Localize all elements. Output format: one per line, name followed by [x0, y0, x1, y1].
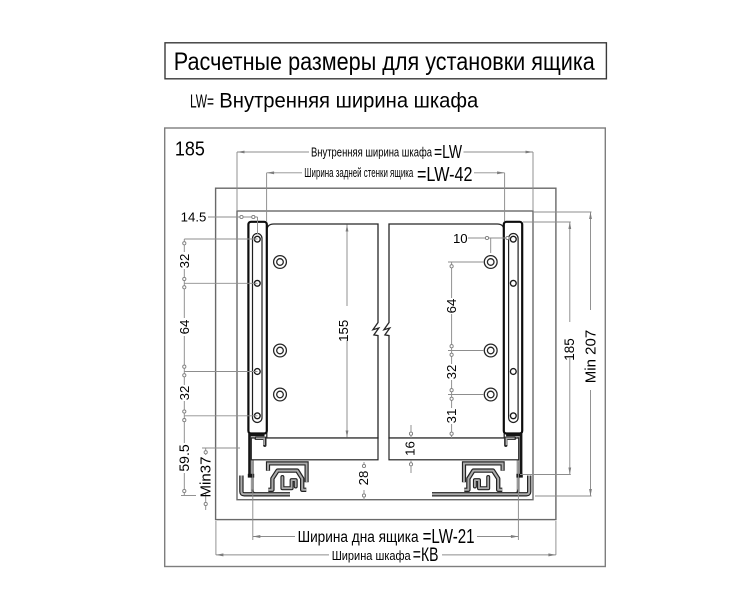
svg-text:31: 31 — [444, 409, 459, 424]
svg-text:Ширина задней стенки ящика: Ширина задней стенки ящика — [304, 165, 413, 180]
svg-text:28: 28 — [356, 471, 371, 486]
svg-text:Ширина шкафа: Ширина шкафа — [332, 548, 412, 563]
svg-text:32: 32 — [444, 365, 459, 380]
svg-text:=КВ: =КВ — [413, 545, 439, 566]
svg-text:Внутренняя ширина шкафа: Внутренняя ширина шкафа — [219, 90, 478, 113]
svg-text:Ширина дна ящика: Ширина дна ящика — [298, 529, 419, 546]
svg-text:=LW: =LW — [434, 141, 462, 162]
svg-text:155: 155 — [336, 320, 351, 342]
svg-text:185: 185 — [175, 139, 205, 161]
svg-text:64: 64 — [444, 299, 459, 314]
svg-text:14.5: 14.5 — [181, 210, 207, 225]
svg-text:=LW-42: =LW-42 — [417, 164, 473, 186]
svg-text:32: 32 — [177, 254, 192, 269]
svg-text:32: 32 — [177, 386, 192, 401]
svg-text:Расчетные размеры для установк: Расчетные размеры для установки ящика — [174, 49, 595, 76]
svg-text:16: 16 — [403, 441, 418, 456]
svg-text:64: 64 — [177, 320, 192, 335]
svg-text:Min 207: Min 207 — [582, 330, 599, 383]
svg-text:LW=: LW= — [190, 92, 214, 112]
svg-text:10: 10 — [453, 231, 468, 246]
svg-text:185: 185 — [562, 338, 577, 361]
svg-text:59.5: 59.5 — [176, 444, 192, 471]
svg-text:Min37: Min37 — [197, 457, 214, 498]
svg-text:Внутренняя ширина шкафа: Внутренняя ширина шкафа — [311, 145, 433, 160]
